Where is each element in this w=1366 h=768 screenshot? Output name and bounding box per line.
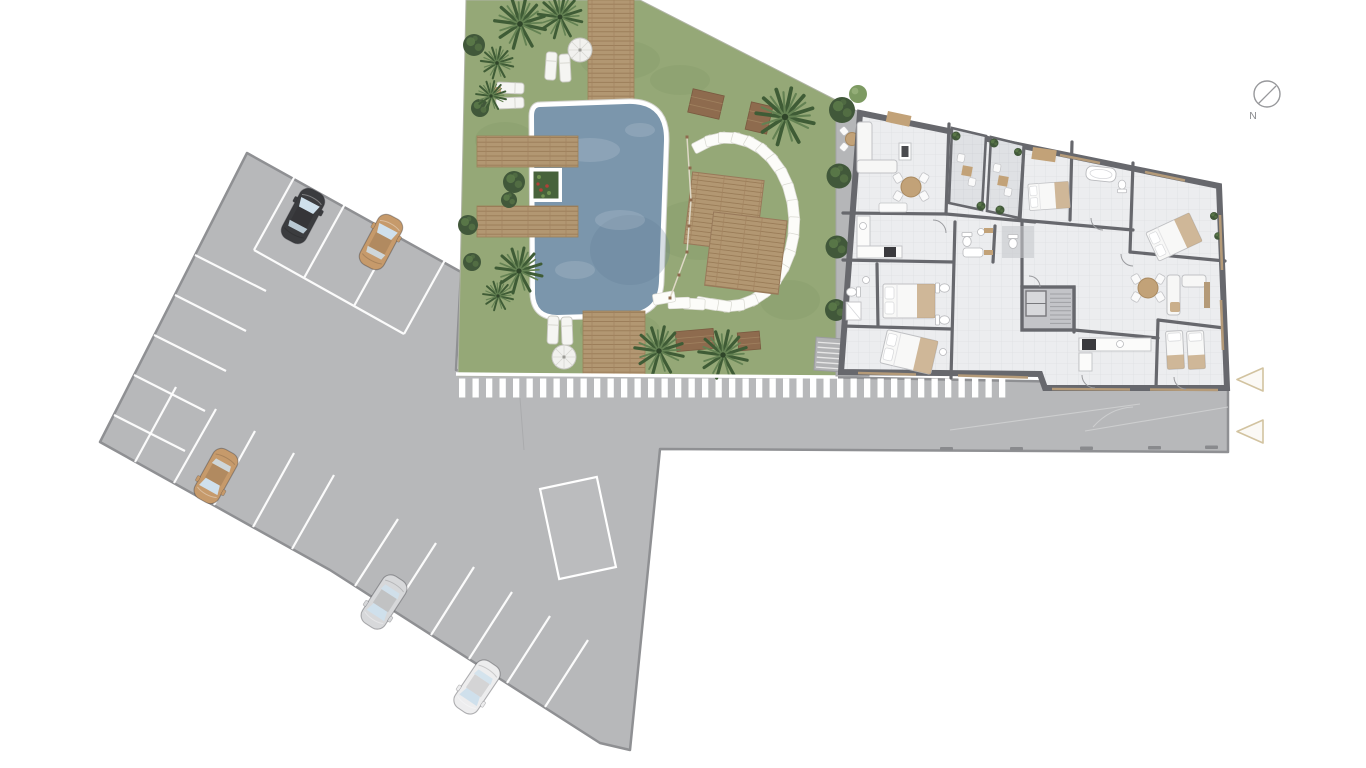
pool-garden — [456, 0, 838, 379]
sink — [860, 223, 867, 230]
pool-deck-south — [583, 311, 645, 375]
single-bed — [1166, 331, 1185, 370]
double-bed — [883, 284, 935, 318]
site-plan-page: N — [0, 0, 1366, 768]
light-green-tree — [849, 85, 867, 103]
balcony-1 — [949, 128, 986, 211]
wood-platform-2 — [705, 212, 787, 294]
path-tree — [829, 97, 855, 123]
compass-circle — [1254, 81, 1280, 107]
wood-walkway — [588, 0, 634, 104]
building-floorplan — [841, 111, 1227, 390]
stove — [1082, 339, 1096, 350]
tv-cabinet — [899, 143, 911, 160]
site-plan-svg: N — [0, 0, 1366, 768]
bench-seat — [879, 203, 907, 212]
compass-needle — [1258, 86, 1276, 104]
pool-umbrella-south — [552, 345, 576, 369]
double-bed — [1028, 181, 1070, 210]
entrance-arrow-2 — [1237, 420, 1263, 443]
pool-deck-pier-upper — [477, 136, 578, 167]
pool-umbrella-north — [568, 38, 592, 62]
pool-deck-pier-lower — [477, 206, 578, 237]
path-tree — [827, 164, 852, 189]
balcony-2 — [987, 137, 1024, 218]
entrance-markers — [1237, 368, 1263, 443]
stair-elevator-core — [1022, 287, 1074, 330]
entrance-arrow-1 — [1237, 368, 1263, 391]
promenade-stripe-paving — [458, 379, 1006, 398]
sink — [1117, 341, 1124, 348]
stove — [884, 247, 896, 257]
compass: N — [1249, 81, 1280, 122]
path-tree — [826, 236, 849, 259]
planter-box — [530, 168, 562, 202]
single-bed — [1187, 331, 1206, 370]
compass-label: N — [1249, 110, 1257, 122]
tv-unit — [1204, 282, 1210, 308]
